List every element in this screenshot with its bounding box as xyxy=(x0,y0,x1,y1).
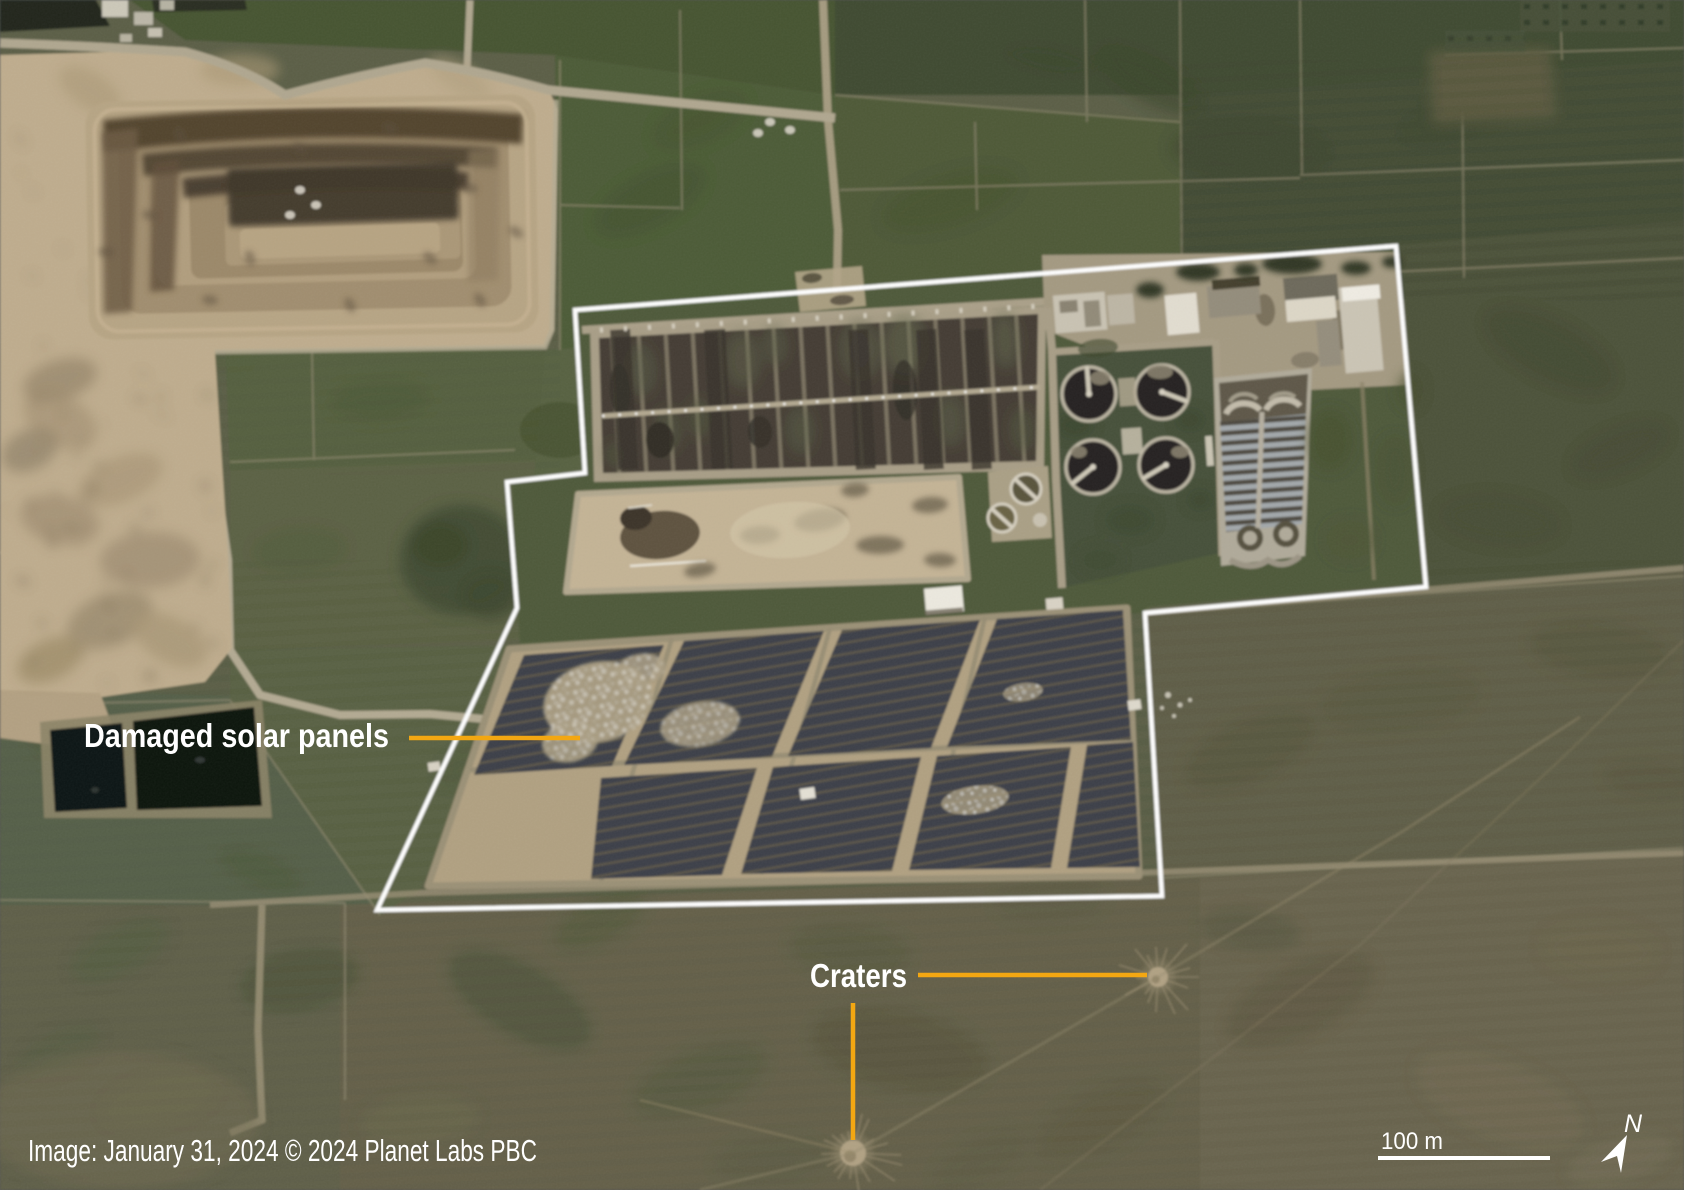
svg-text:N: N xyxy=(1624,1110,1643,1138)
svg-text:Craters: Craters xyxy=(810,957,907,994)
svg-text:100 m: 100 m xyxy=(1381,1128,1443,1155)
svg-text:Damaged solar panels: Damaged solar panels xyxy=(84,717,389,754)
svg-text:Image: January 31, 2024 © 2024: Image: January 31, 2024 © 2024 Planet La… xyxy=(28,1133,537,1168)
